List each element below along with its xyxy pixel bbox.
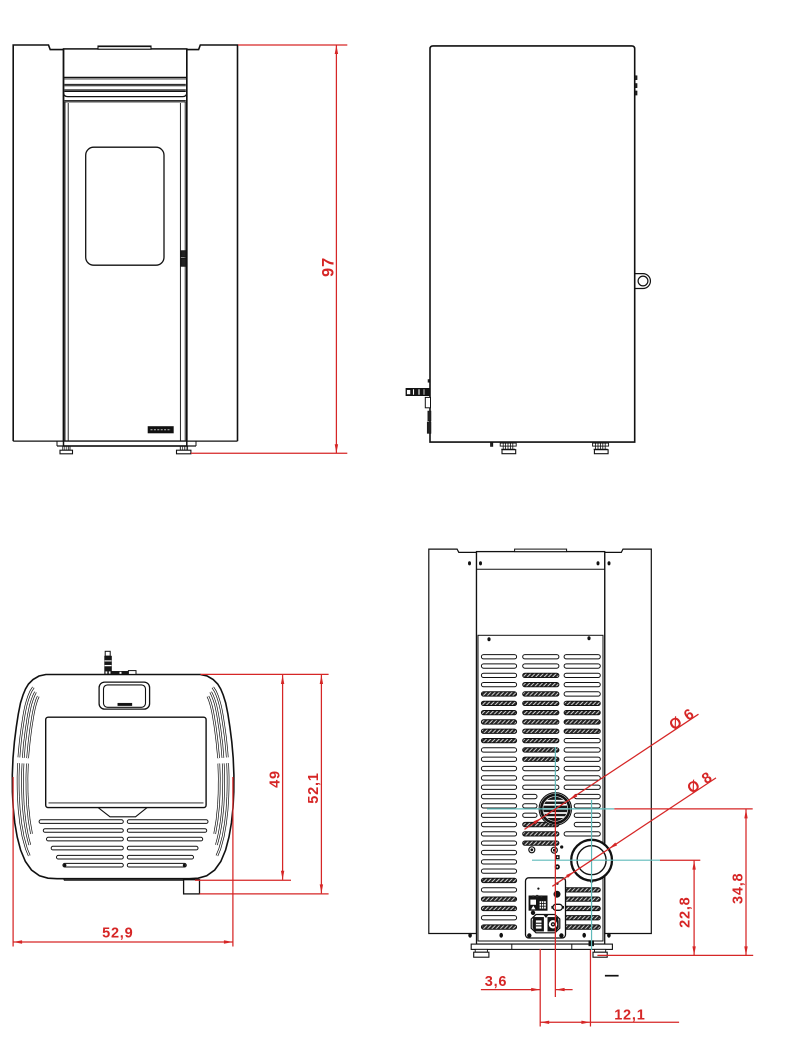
svg-text:22,8: 22,8 xyxy=(677,896,693,927)
svg-text:3,6: 3,6 xyxy=(485,974,508,990)
svg-text:12,1: 12,1 xyxy=(614,1008,645,1024)
svg-text:52,1: 52,1 xyxy=(306,772,322,803)
svg-text:34,8: 34,8 xyxy=(730,873,746,904)
svg-text:97: 97 xyxy=(320,257,338,277)
svg-text:49: 49 xyxy=(267,770,283,788)
svg-text:52,9: 52,9 xyxy=(102,925,133,941)
